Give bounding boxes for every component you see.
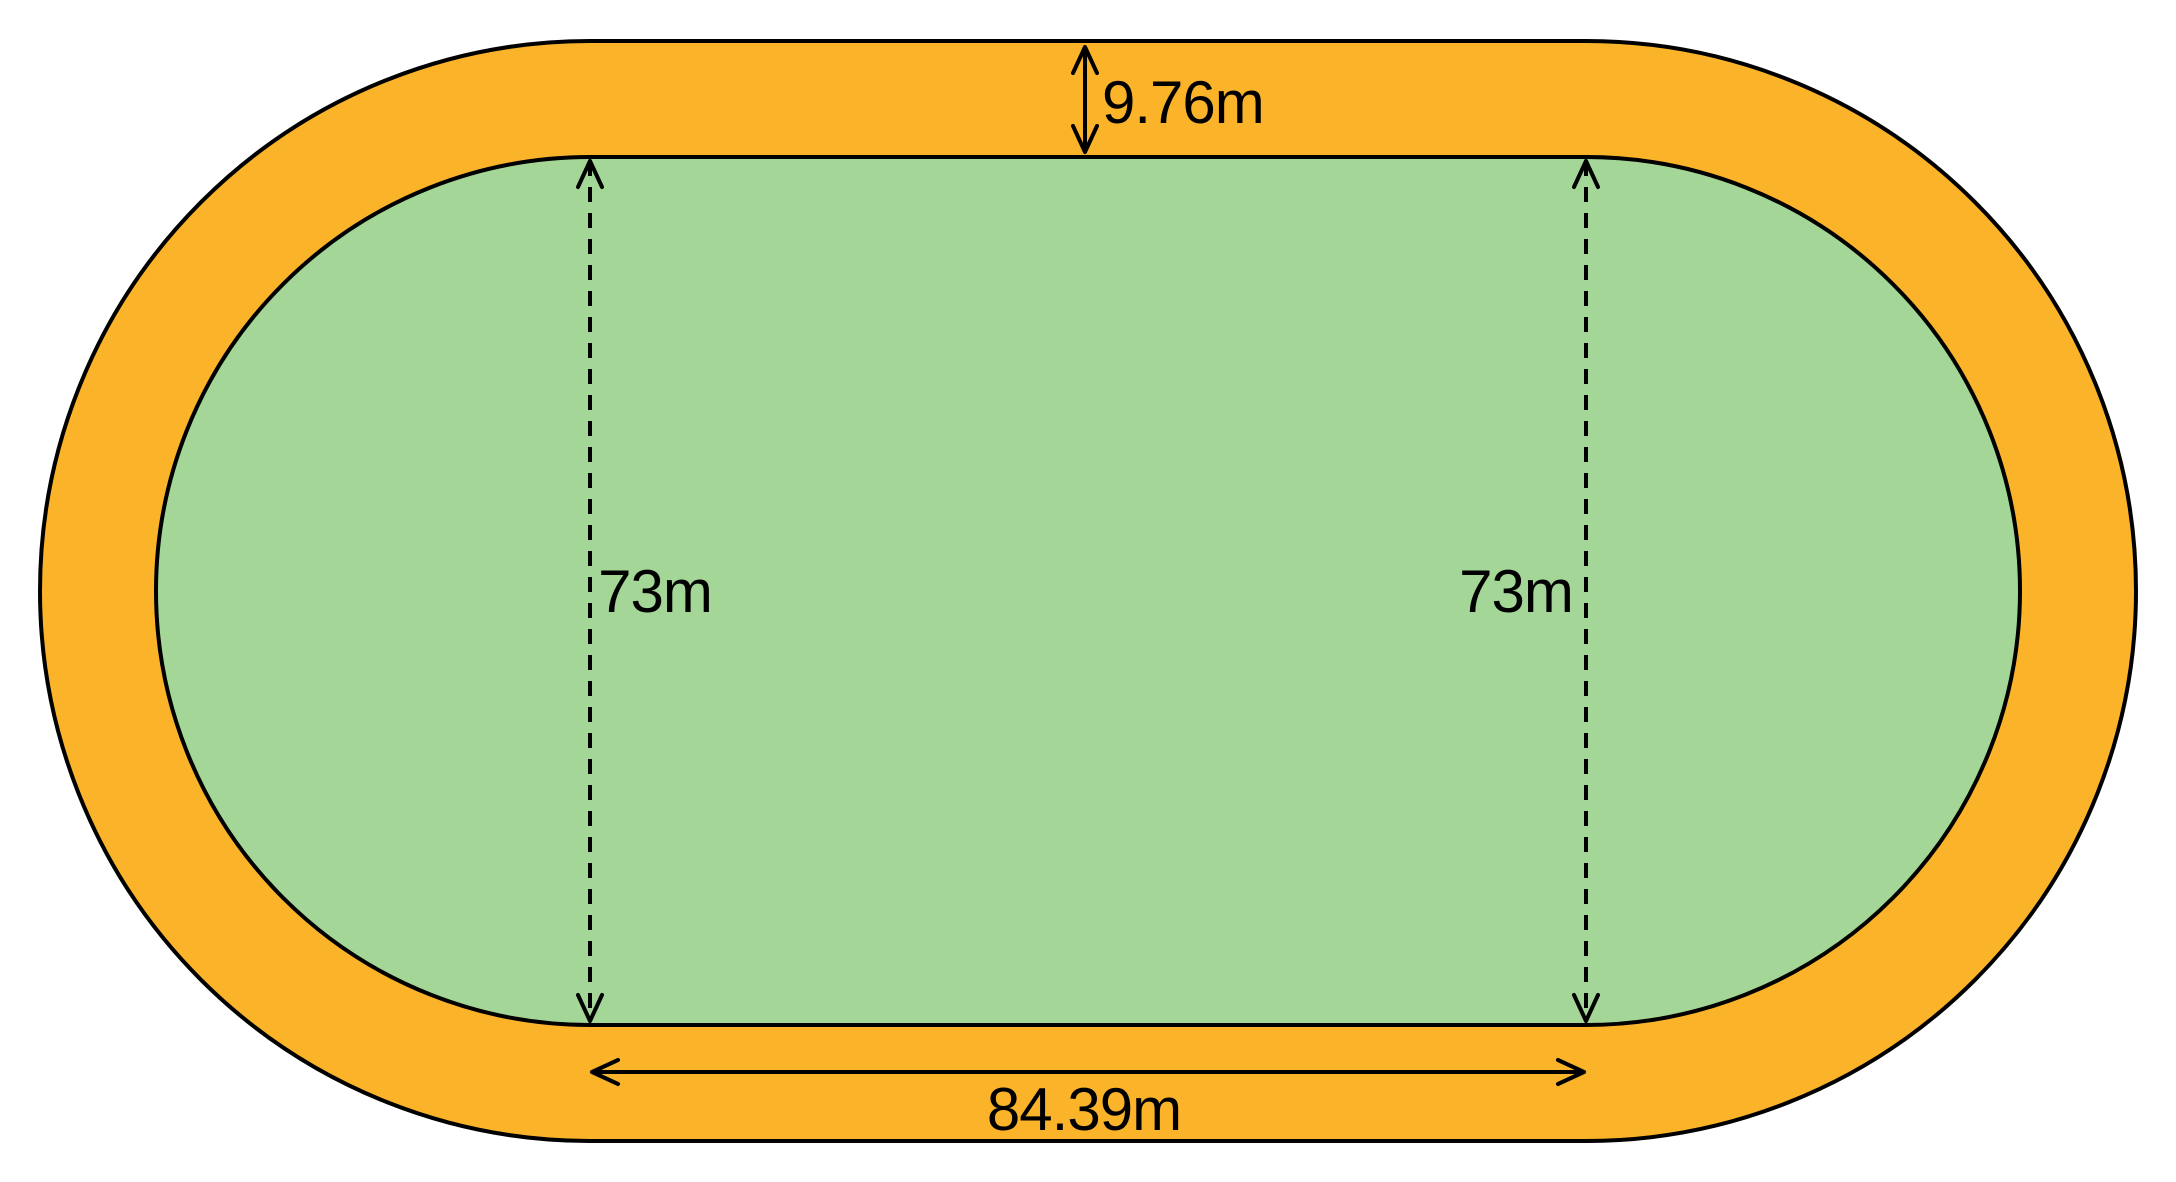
track-diagram: 9.76m 73m 73m 84.39m (0, 0, 2176, 1182)
field-height-label-right: 73m (1459, 558, 1573, 625)
track-diagram-svg: 9.76m 73m 73m 84.39m (0, 0, 2176, 1182)
inner-field-shape (156, 157, 2020, 1025)
track-width-label: 9.76m (1102, 69, 1264, 136)
field-height-label-left: 73m (598, 558, 712, 625)
straight-length-label: 84.39m (987, 1076, 1181, 1143)
